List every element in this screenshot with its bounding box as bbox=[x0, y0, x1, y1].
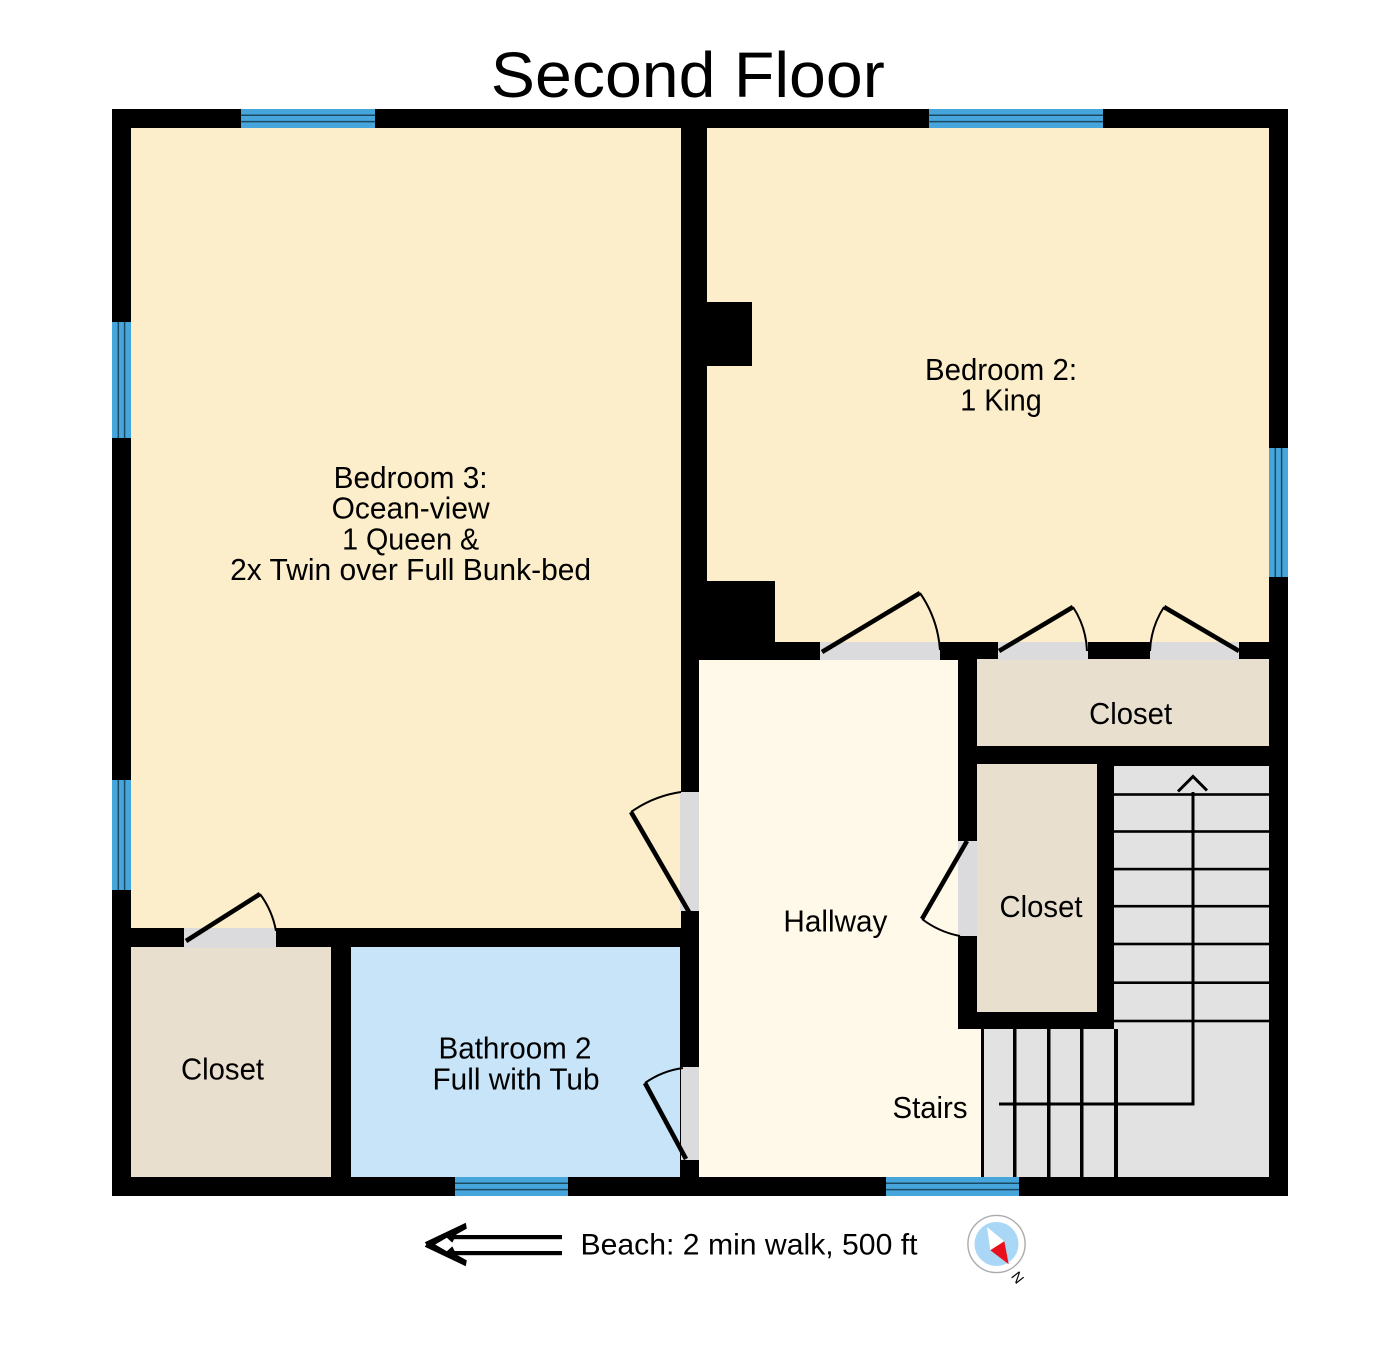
svg-text:Closet: Closet bbox=[1000, 889, 1083, 924]
svg-text:Closet: Closet bbox=[1089, 696, 1172, 731]
svg-text:Beach: 2 min walk, 500 ft: Beach: 2 min walk, 500 ft bbox=[581, 1229, 919, 1262]
svg-text:1 King: 1 King bbox=[960, 383, 1042, 418]
svg-text:2x Twin over Full Bunk-bed: 2x Twin over Full Bunk-bed bbox=[230, 552, 591, 587]
svg-text:Second Floor: Second Floor bbox=[491, 39, 885, 111]
svg-text:1 Queen &: 1 Queen & bbox=[342, 521, 479, 556]
svg-text:Stairs: Stairs bbox=[893, 1090, 968, 1125]
svg-text:Closet: Closet bbox=[181, 1051, 264, 1086]
svg-text:Ocean-view: Ocean-view bbox=[332, 491, 491, 526]
svg-text:Full with Tub: Full with Tub bbox=[433, 1062, 600, 1097]
svg-text:Bedroom 3:: Bedroom 3: bbox=[334, 460, 488, 495]
svg-text:Hallway: Hallway bbox=[783, 903, 887, 938]
svg-text:Bathroom 2: Bathroom 2 bbox=[439, 1031, 592, 1066]
